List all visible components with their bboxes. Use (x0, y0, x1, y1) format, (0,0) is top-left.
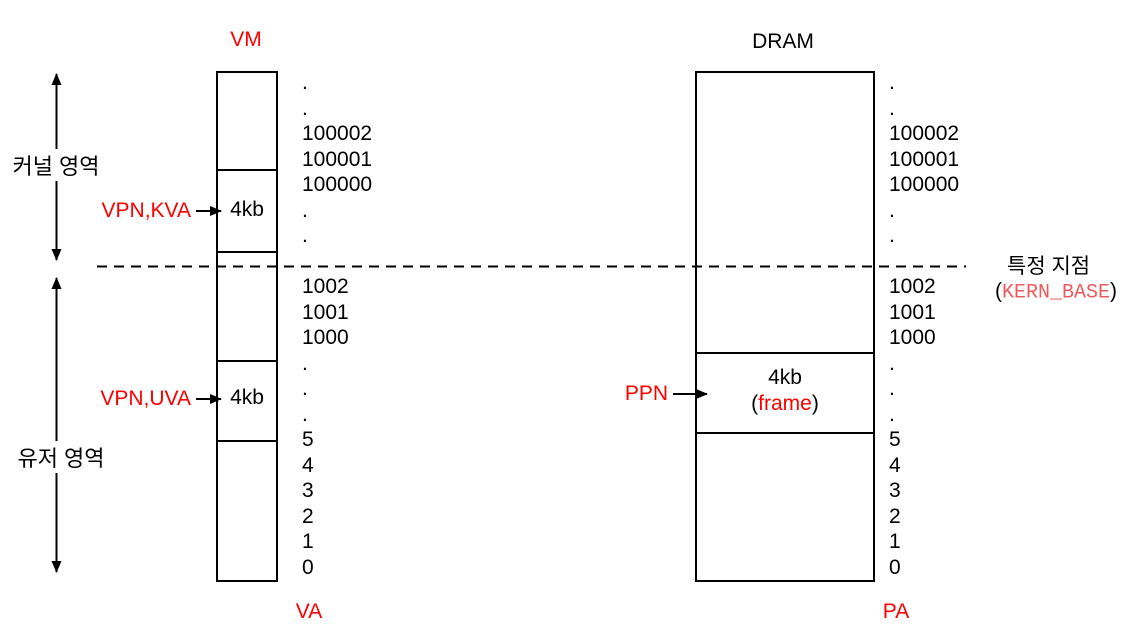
diagram-lines-overlay (0, 0, 1142, 633)
user-region-label: 유저 영역 (14, 441, 107, 473)
kernel-region-label: 커널 영역 (9, 149, 102, 181)
memory-mapping-diagram: VM DRAM 4kb 4kb 4kb (frame) VPN,KVA VPN,… (0, 0, 1142, 633)
